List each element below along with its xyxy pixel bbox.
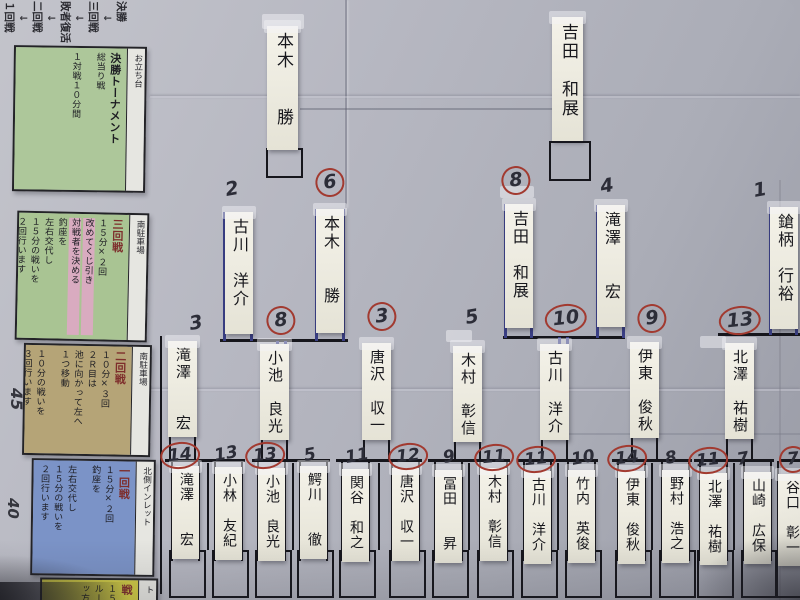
score-circled: 3: [367, 302, 396, 331]
progression-arrow-icon: ↓: [16, 14, 29, 22]
legend-box-body: 三回戦１５分×２回改めてくじ引き対戦者を決める釣座を左右交代し１５分の戦いを２回…: [17, 213, 130, 340]
round1-player-tag: 関谷 和之: [342, 469, 369, 562]
tape-piece: [262, 14, 304, 29]
score-value: 10: [570, 446, 597, 470]
quarterfinal-player-tag: 伊東 俊秋: [630, 342, 659, 438]
quarterfinal-player-tag: 木村 彰信: [453, 346, 482, 442]
round1-player-tag: 鰐川 徹: [300, 466, 327, 559]
score-value: 11: [687, 445, 729, 476]
score-circled: 9: [637, 304, 666, 333]
round1-player-tag: 野村 浩之: [662, 470, 689, 563]
score-value: 9: [441, 446, 456, 468]
score-circled: 12: [388, 443, 428, 470]
legend-line: 釣座を: [88, 465, 101, 570]
score-circled: 14: [607, 445, 647, 472]
score: 7: [737, 449, 749, 469]
score-value: 3: [366, 301, 398, 333]
bracket-stub: [566, 437, 568, 461]
score: 3: [189, 312, 202, 334]
progression-arrow-icon: ↓: [72, 14, 85, 22]
score: 2: [225, 178, 238, 200]
semifinal-player-tag: 吉田 和展: [505, 204, 533, 328]
score: 13: [214, 444, 238, 464]
quarterfinal-player-tag: 小池 良光: [260, 344, 289, 440]
legend-title: 三回戦: [108, 219, 124, 336]
legend-box-0: 決勝トーナメント総当り戦１対戦１０分間お立ち台: [12, 45, 147, 193]
margin-number-bottom: 40: [4, 498, 22, 519]
legend-location: 南駐車場: [127, 215, 148, 340]
legend-line: １０分×３回: [97, 350, 111, 450]
paper-seam-top: [150, 96, 800, 98]
score: 4: [600, 175, 613, 197]
legend-line: １５分×２回: [94, 218, 108, 335]
score-value: 11: [344, 444, 371, 468]
legend-line: 対戦者を決める: [67, 218, 81, 335]
quarterfinal-player-tag: 北澤 祐樹: [725, 343, 754, 439]
score-value: 1: [752, 178, 769, 202]
final-slot-box: [549, 141, 591, 181]
round-progression: １回戦↓二回戦↓敗者復活↓三回戦↓決勝: [2, 1, 128, 43]
score-value: 7: [735, 448, 750, 470]
score-value: 3: [188, 311, 205, 335]
legend-line: １５分×２回: [101, 465, 114, 570]
pair-divider: [557, 463, 559, 550]
score-circled: 10: [545, 304, 587, 333]
pair-divider: [292, 463, 294, 550]
legend-line: １０分の戦いを: [33, 349, 47, 449]
score: 5: [465, 306, 478, 328]
pair-divider: [651, 463, 653, 550]
legend-title: 一回戦: [115, 465, 130, 570]
legend-box-3: 一回戦１５分×２回釣座を左右交代し１５分の戦いを２回行います北側インレット: [30, 458, 156, 577]
paper-crease-final: [300, 108, 560, 110]
score-value: 5: [464, 305, 481, 329]
score-value: 9: [636, 303, 668, 335]
legend-line: [77, 465, 87, 570]
score-circled: 11: [688, 447, 728, 474]
legend-line: １５分の戦いを: [50, 464, 63, 569]
score-value: 13: [717, 304, 762, 337]
score-circled: 8: [266, 306, 295, 335]
score-value: 7: [778, 445, 800, 475]
quarterfinal-player-tag: 唐沢 収一: [362, 343, 391, 440]
legend-line: 総当り戦: [92, 52, 106, 186]
legend-box-body: 二回戦１０分×３回２Ｒ目は池に向かって左へ１つ移動１０分の戦いを３回行います: [24, 345, 132, 455]
legend-line: [46, 349, 57, 449]
round1-player-tag: 冨田 昇: [435, 470, 462, 563]
legend-location: 北側インレット: [134, 462, 154, 575]
round1-player-tag: 竹内 英俊: [568, 470, 595, 563]
pair-divider: [468, 463, 470, 550]
legend-location: 南駐車場: [130, 347, 150, 455]
legend-line: ２Ｒ目は: [84, 350, 98, 450]
legend-box-body: 一回戦１５分×２回釣座を左右交代し１５分の戦いを２回行います: [32, 460, 136, 574]
quarterfinal-player-tag: 滝澤 宏: [168, 341, 197, 437]
round1-player-tag: 滝澤 宏: [172, 466, 199, 559]
semifinal-player-tag: 滝澤 宏: [597, 205, 625, 327]
final-slot-box: [266, 148, 303, 178]
score-value: 14: [159, 440, 201, 471]
semifinal-player-tag: 本木 勝: [316, 209, 344, 333]
score: 1: [753, 179, 766, 201]
round1-player-tag: 古川 洋介: [524, 471, 551, 564]
round1-player-tag: 唐沢 収一: [392, 468, 419, 561]
legend-box-body: 決勝トーナメント総当り戦１対戦１０分間: [14, 47, 127, 191]
round1-player-tag: 木村 彰信: [480, 468, 507, 561]
round1-player-tag: 北澤 祐樹: [700, 473, 727, 565]
score-value: 12: [387, 441, 429, 472]
legend-line: 釣座を: [53, 217, 67, 334]
legend-title: 決勝トーナメント: [106, 52, 122, 186]
legend-line: ３回行います: [24, 349, 33, 449]
round1-player-tag: 山崎 広保: [744, 472, 771, 564]
bracket-stub: [751, 437, 753, 461]
final-player-tag: 吉田 和展: [552, 17, 583, 141]
score: 8: [665, 448, 677, 468]
round1-player-tag: 小林 友紀: [215, 467, 242, 560]
progression-step: １回戦: [2, 1, 15, 33]
score-circled: 11: [474, 444, 514, 471]
background-shadow: [0, 582, 130, 600]
paper-seam-lower: [560, 433, 800, 435]
tape-piece: [700, 336, 726, 348]
legend-line: 改めてくじ引き: [80, 218, 94, 335]
round1-player-tag: 伊東 俊秋: [618, 471, 645, 564]
tournament-board: １回戦↓二回戦↓敗者復活↓三回戦↓決勝 45 40 基本進行 決勝トーナメント総…: [0, 0, 800, 600]
score-value: 8: [500, 165, 532, 197]
score-value: 5: [302, 444, 317, 466]
legend-line: １５分の戦いを: [26, 217, 40, 334]
legend-box-1: 三回戦１５分×２回改めてくじ引き対戦者を決める釣座を左右交代し１５分の戦いを２回…: [15, 211, 150, 343]
score-circled: 6: [315, 168, 344, 197]
progression-step: 決勝: [114, 1, 127, 22]
score-value: 13: [213, 442, 240, 466]
pair-divider: [378, 463, 380, 550]
score-value: 2: [224, 177, 241, 201]
score-value: 6: [314, 167, 346, 199]
score-value: 8: [663, 447, 678, 469]
score: 5: [304, 445, 316, 465]
score-value: 13: [244, 440, 286, 471]
legend-line: ２回行います: [37, 464, 50, 569]
score: 10: [571, 448, 595, 468]
score-circled: 13: [245, 442, 285, 469]
final-player-tag: 本木 勝: [267, 26, 298, 150]
legend-line: [82, 52, 93, 186]
score-circled: 7: [779, 446, 800, 473]
pair-divider: [733, 463, 735, 550]
progression-step: 三回戦: [86, 1, 99, 33]
score-value: 11: [515, 444, 557, 475]
bracket-stub: [656, 437, 658, 461]
legend-line: １つ移動: [57, 349, 71, 449]
score-circled: 13: [719, 306, 761, 335]
paper-seam-vertical: [345, 0, 347, 208]
round1-player-tag: 谷口 彰一: [778, 474, 800, 566]
legend-location: ト: [138, 580, 156, 600]
progression-step: 敗者復活: [58, 1, 71, 43]
semifinal-player-tag: 鎗柄 行裕: [770, 207, 798, 329]
score: 9: [443, 447, 455, 467]
round1-player-tag: 小池 良光: [258, 468, 285, 561]
pair-divider: [207, 463, 209, 550]
score-value: 14: [606, 443, 648, 474]
bracket-stub: [286, 437, 288, 461]
legend-line: 左右交代し: [40, 217, 54, 334]
legend-location: お立ち台: [125, 49, 145, 191]
score-value: 8: [265, 305, 297, 337]
legend-line: １対戦１０分間: [68, 52, 82, 186]
semifinal-player-tag: 古川 洋介: [225, 212, 253, 334]
score-circled: 14: [160, 442, 200, 469]
progression-arrow-icon: ↓: [44, 14, 57, 22]
legend-title: 二回戦: [111, 350, 127, 450]
legend-line: 左右交代し: [64, 465, 77, 570]
score-value: 4: [599, 174, 616, 198]
score-value: 10: [543, 302, 588, 335]
score-value: 11: [473, 442, 515, 473]
legend-box-2: 二回戦１０分×３回２Ｒ目は池に向かって左へ１つ移動１０分の戦いを３回行います南駐…: [22, 343, 152, 457]
legend-line: 池に向かって左へ: [70, 350, 84, 450]
score: 11: [345, 446, 369, 466]
progression-arrow-icon: ↓: [100, 14, 113, 22]
quarterfinal-player-tag: 古川 洋介: [540, 344, 569, 440]
score-circled: 8: [501, 166, 530, 195]
progression-step: 二回戦: [30, 1, 43, 33]
score-circled: 11: [516, 446, 556, 473]
tape-piece: [446, 330, 472, 342]
